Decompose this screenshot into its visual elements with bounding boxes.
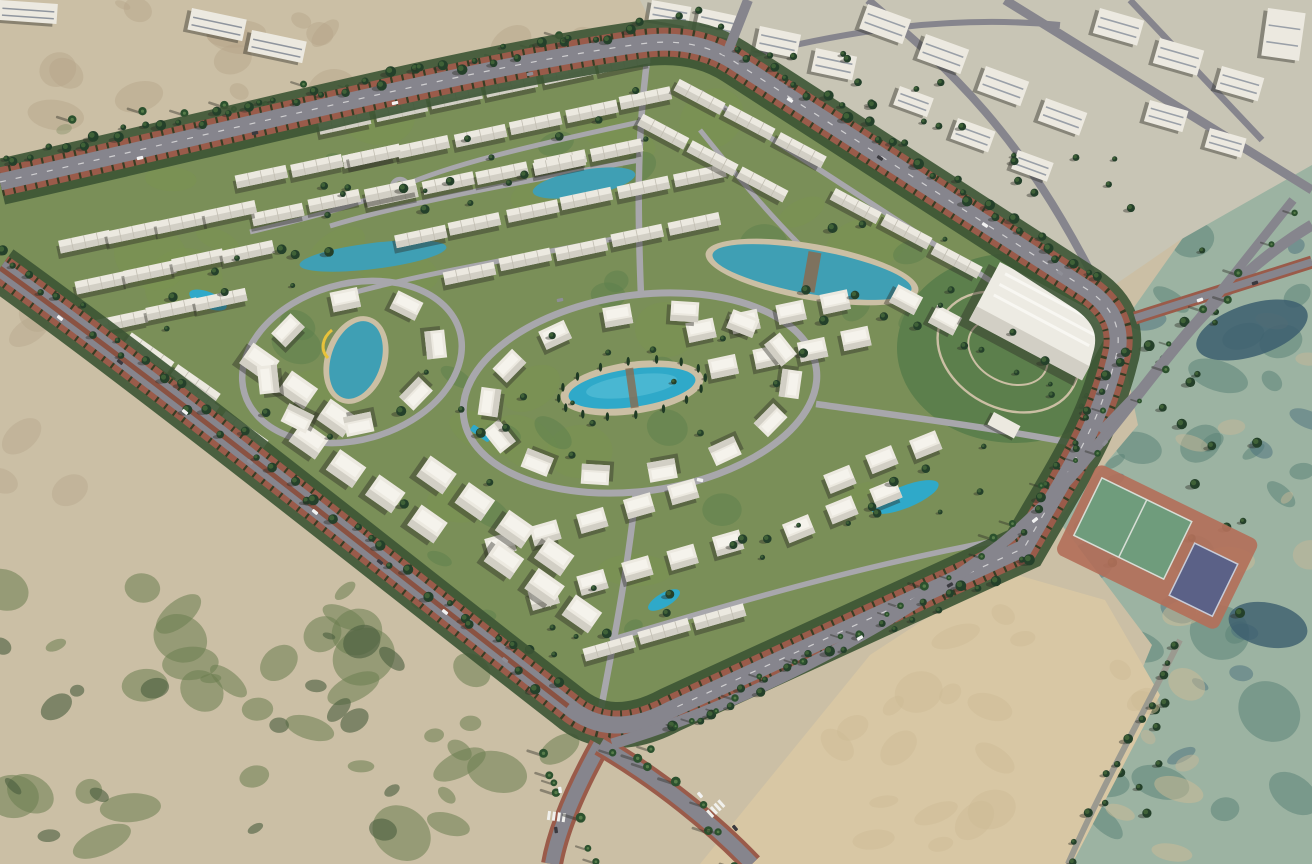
apartment-building — [0, 0, 58, 27]
apartment-building — [1257, 7, 1306, 63]
aerial-render-canvas — [0, 0, 1312, 864]
aerial-render — [0, 0, 1312, 864]
